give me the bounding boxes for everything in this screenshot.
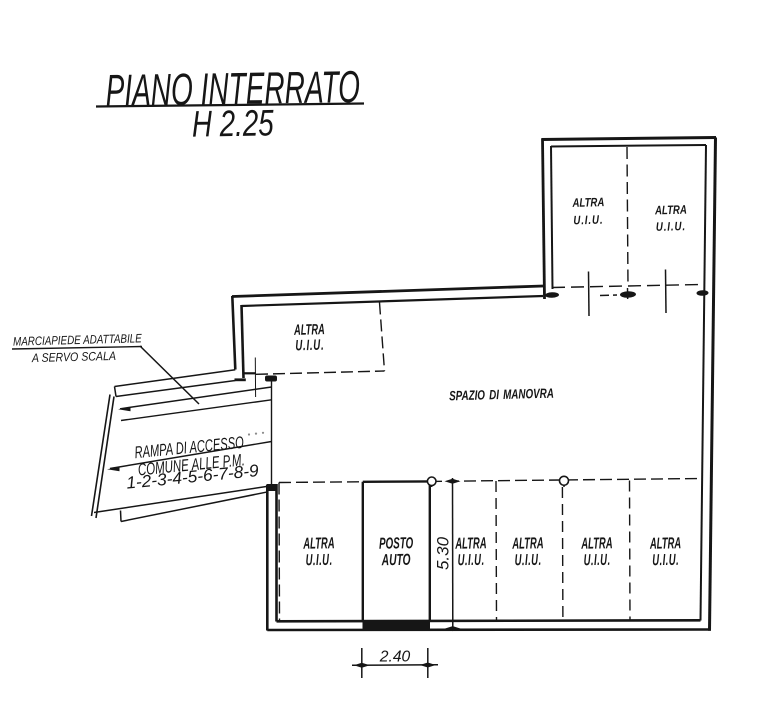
svg-text:U.I.U.: U.I.U. xyxy=(656,220,686,234)
svg-text:U.I.U.: U.I.U. xyxy=(457,550,484,569)
svg-text:U.I.U.: U.I.U. xyxy=(652,550,679,569)
svg-text:H 2.25: H 2.25 xyxy=(192,101,275,144)
svg-text:5.30: 5.30 xyxy=(434,536,453,570)
svg-text:ALTRA: ALTRA xyxy=(654,204,687,218)
svg-text:ALTRA: ALTRA xyxy=(571,196,604,210)
svg-text:U.I.U.: U.I.U. xyxy=(573,214,603,228)
svg-text:A SERVO SCALA: A SERVO SCALA xyxy=(31,350,117,365)
svg-text:AUTO: AUTO xyxy=(381,550,411,568)
svg-text:2.40: 2.40 xyxy=(379,648,411,665)
svg-text:U.I.U.: U.I.U. xyxy=(295,337,325,354)
svg-text:U.I.U.: U.I.U. xyxy=(514,550,541,569)
svg-text:SPAZIO DI MANOVRA: SPAZIO DI MANOVRA xyxy=(449,385,554,404)
svg-text:U.I.U.: U.I.U. xyxy=(583,550,610,569)
svg-text:U.I.U.: U.I.U. xyxy=(305,550,332,569)
